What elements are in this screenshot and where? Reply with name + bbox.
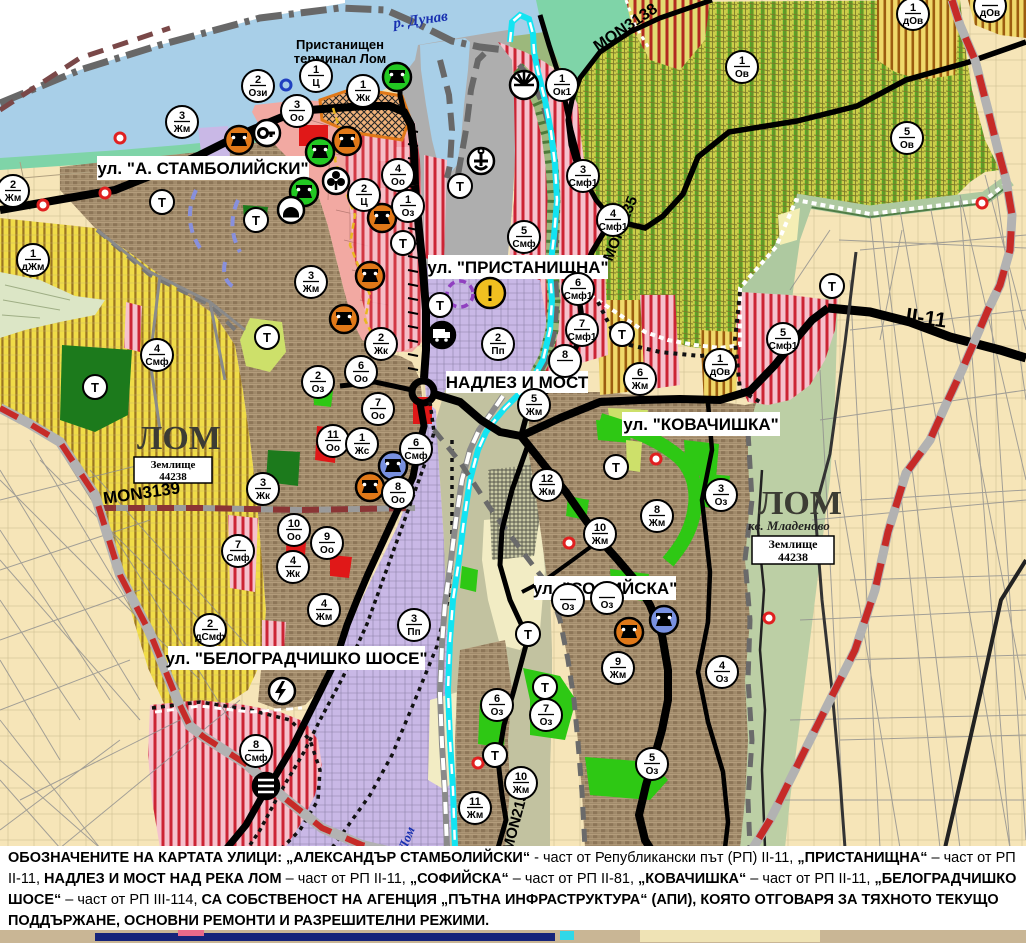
svg-text:дОв: дОв (980, 8, 1000, 19)
svg-text:Жм: Жм (609, 670, 626, 681)
svg-text:Т: Т (524, 627, 532, 642)
svg-text:1: 1 (360, 79, 366, 91)
svg-text:8: 8 (253, 739, 259, 751)
svg-text:Жм: Жм (4, 193, 21, 204)
svg-text:Оо: Оо (320, 545, 334, 556)
svg-text:Жм: Жм (648, 518, 665, 529)
svg-text:3: 3 (179, 110, 185, 122)
svg-text:1: 1 (30, 248, 36, 260)
svg-text:ул. "КОВАЧИШКА": ул. "КОВАЧИШКА" (623, 415, 779, 434)
svg-text:II-11, НАДЛЕЗ И МОСТ НАД РЕКА: II-11, НАДЛЕЗ И МОСТ НАД РЕКА ЛОМ – част… (8, 869, 1016, 887)
svg-text:Жк: Жк (373, 346, 389, 357)
svg-text:Ози: Ози (249, 88, 268, 99)
svg-text:дОв: дОв (710, 367, 730, 378)
svg-text:Землище: Землище (151, 459, 196, 471)
svg-text:Оо: Оо (354, 374, 368, 385)
svg-text:Жм: Жм (173, 124, 190, 135)
svg-text:кв. Младеново: кв. Младеново (748, 518, 830, 533)
svg-text:ул. "А. СТАМБОЛИЙСКИ": ул. "А. СТАМБОЛИЙСКИ" (97, 159, 308, 178)
svg-text:5: 5 (531, 393, 537, 405)
svg-text:Землище: Землище (769, 537, 819, 551)
svg-text:ул. "БЕЛОГРАДЧИШКО ШОСЕ": ул. "БЕЛОГРАДЧИШКО ШОСЕ" (165, 649, 427, 668)
svg-text:Т: Т (456, 179, 464, 194)
svg-text:5: 5 (780, 327, 786, 339)
svg-text:Оо: Оо (290, 113, 304, 124)
svg-text:10: 10 (515, 771, 527, 783)
svg-text:Т: Т (618, 327, 626, 342)
svg-text:Оз: Оз (540, 717, 553, 728)
svg-text:Т: Т (541, 680, 549, 695)
svg-text:Ов: Ов (900, 140, 914, 151)
svg-text:4: 4 (321, 598, 328, 610)
svg-text:Оз: Оз (402, 208, 415, 219)
svg-text:!: ! (486, 281, 493, 306)
svg-text:дСмф: дСмф (195, 631, 225, 643)
svg-text:Оз: Оз (601, 600, 614, 611)
svg-text:Оз: Оз (646, 766, 659, 777)
svg-text:7: 7 (579, 318, 585, 330)
svg-text:Жм: Жм (591, 536, 608, 547)
svg-text:Жк: Жк (285, 569, 301, 580)
svg-text:3: 3 (294, 99, 300, 111)
svg-text:Т: Т (252, 213, 260, 228)
svg-text:Пп: Пп (407, 627, 420, 638)
svg-text:Ов: Ов (735, 69, 749, 80)
svg-text:Т: Т (158, 195, 166, 210)
svg-text:Оз: Оз (716, 674, 729, 685)
svg-text:12: 12 (541, 473, 553, 485)
svg-text:Т: Т (399, 236, 407, 251)
svg-text:11: 11 (327, 429, 339, 441)
svg-text:Ц: Ц (312, 78, 320, 89)
svg-text:Жм: Жм (466, 810, 483, 821)
svg-text:2: 2 (315, 370, 321, 382)
svg-text:Оо: Оо (371, 411, 385, 422)
svg-text:Смф1: Смф1 (568, 331, 597, 343)
svg-text:Т: Т (436, 298, 444, 313)
svg-text:Смф1: Смф1 (564, 290, 593, 302)
svg-text:Пристанищен: Пристанищен (296, 37, 384, 52)
svg-text:ЛОМ: ЛОМ (758, 485, 842, 522)
svg-text:ОБОЗНАЧЕНИТЕ НА КАРТАТА УЛИЦИ:: ОБОЗНАЧЕНИТЕ НА КАРТАТА УЛИЦИ: „АЛЕКСАНД… (8, 848, 1016, 866)
svg-text:3: 3 (580, 164, 586, 176)
svg-text:Смф: Смф (145, 356, 168, 368)
svg-text:7: 7 (543, 703, 549, 715)
svg-text:Жм: Жм (538, 487, 555, 498)
svg-text:11: 11 (469, 796, 481, 808)
svg-text:Оз: Оз (491, 707, 504, 718)
svg-text:2: 2 (207, 618, 213, 630)
svg-text:1: 1 (910, 2, 916, 14)
svg-text:5: 5 (649, 752, 655, 764)
svg-text:Смф: Смф (404, 450, 427, 462)
svg-text:6: 6 (494, 693, 500, 705)
svg-text:1: 1 (313, 64, 319, 76)
svg-text:Оо: Оо (326, 443, 340, 454)
svg-text:10: 10 (594, 522, 606, 534)
svg-text:ЛОМ: ЛОМ (137, 420, 221, 457)
svg-text:дОв: дОв (903, 16, 923, 27)
svg-text:Смф: Смф (226, 552, 249, 564)
svg-text:4: 4 (395, 163, 402, 175)
svg-text:Жк: Жк (355, 93, 371, 104)
svg-text:Ц: Ц (360, 197, 368, 208)
svg-text:6: 6 (575, 277, 581, 289)
svg-text:Оо: Оо (391, 177, 405, 188)
svg-text:Т: Т (263, 330, 271, 345)
svg-text:Жс: Жс (354, 446, 370, 457)
svg-text:Т: Т (612, 460, 620, 475)
svg-text:2: 2 (495, 332, 501, 344)
svg-text:9: 9 (615, 656, 621, 668)
svg-text:4: 4 (719, 660, 726, 672)
svg-text:Оз: Оз (312, 384, 325, 395)
svg-text:1: 1 (717, 353, 723, 365)
svg-text:Смф1: Смф1 (569, 177, 598, 189)
svg-text:4: 4 (610, 208, 617, 220)
svg-text:2: 2 (255, 74, 261, 86)
svg-text:Жм: Жм (315, 612, 332, 623)
svg-text:Жм: Жм (302, 284, 319, 295)
svg-text:Смф: Смф (244, 752, 267, 764)
svg-text:Оз: Оз (715, 497, 728, 508)
svg-text:Пп: Пп (491, 346, 504, 357)
svg-text:Жм: Жм (631, 381, 648, 392)
svg-text:Т: Т (91, 380, 99, 395)
svg-text:1: 1 (405, 194, 411, 206)
svg-text:Т: Т (828, 279, 836, 294)
svg-text:3: 3 (260, 477, 266, 489)
svg-text:Смф: Смф (512, 238, 535, 250)
svg-text:2: 2 (10, 179, 16, 191)
svg-text:5: 5 (904, 126, 910, 138)
svg-text:Ок1: Ок1 (553, 87, 572, 98)
svg-text:Оо: Оо (287, 532, 301, 543)
svg-text:4: 4 (290, 555, 297, 567)
svg-text:Жм: Жм (512, 785, 529, 796)
svg-text:2: 2 (361, 183, 367, 195)
svg-text:2: 2 (378, 332, 384, 344)
svg-text:дЖм: дЖм (22, 262, 45, 273)
svg-text:Смф1: Смф1 (599, 221, 628, 233)
svg-text:Оз: Оз (562, 602, 575, 613)
svg-text:5: 5 (521, 225, 527, 237)
svg-text:1: 1 (739, 55, 745, 67)
svg-text:6: 6 (413, 437, 419, 449)
svg-text:Оо: Оо (391, 495, 405, 506)
svg-text:9: 9 (324, 531, 330, 543)
svg-text:Т: Т (491, 748, 499, 763)
svg-text:6: 6 (637, 367, 643, 379)
svg-text:3: 3 (411, 613, 417, 625)
svg-text:6: 6 (358, 360, 364, 372)
svg-text:Смф1: Смф1 (769, 340, 798, 352)
svg-text:3: 3 (308, 270, 314, 282)
svg-text:Жк: Жк (255, 491, 271, 502)
svg-text:8: 8 (654, 504, 660, 516)
svg-text:1: 1 (359, 432, 365, 444)
svg-text:3: 3 (718, 483, 724, 495)
svg-text:ШОСЕ“ – част от РП III-114, СА: ШОСЕ“ – част от РП III-114, СА СОБСТВЕНО… (8, 892, 999, 908)
svg-text:4: 4 (154, 343, 161, 355)
svg-text:1: 1 (559, 73, 565, 85)
svg-text:ПОДДЪРЖАНЕ, ОСНОВНИ РЕМОНТИ И: ПОДДЪРЖАНЕ, ОСНОВНИ РЕМОНТИ И РАЗРЕШИТЕЛ… (8, 913, 489, 929)
svg-text:10: 10 (288, 518, 300, 530)
svg-text:7: 7 (375, 397, 381, 409)
svg-text:7: 7 (235, 539, 241, 551)
svg-text:8: 8 (562, 349, 568, 361)
svg-text:44238: 44238 (778, 550, 808, 564)
svg-text:8: 8 (395, 481, 401, 493)
svg-text:Жм: Жм (525, 407, 542, 418)
